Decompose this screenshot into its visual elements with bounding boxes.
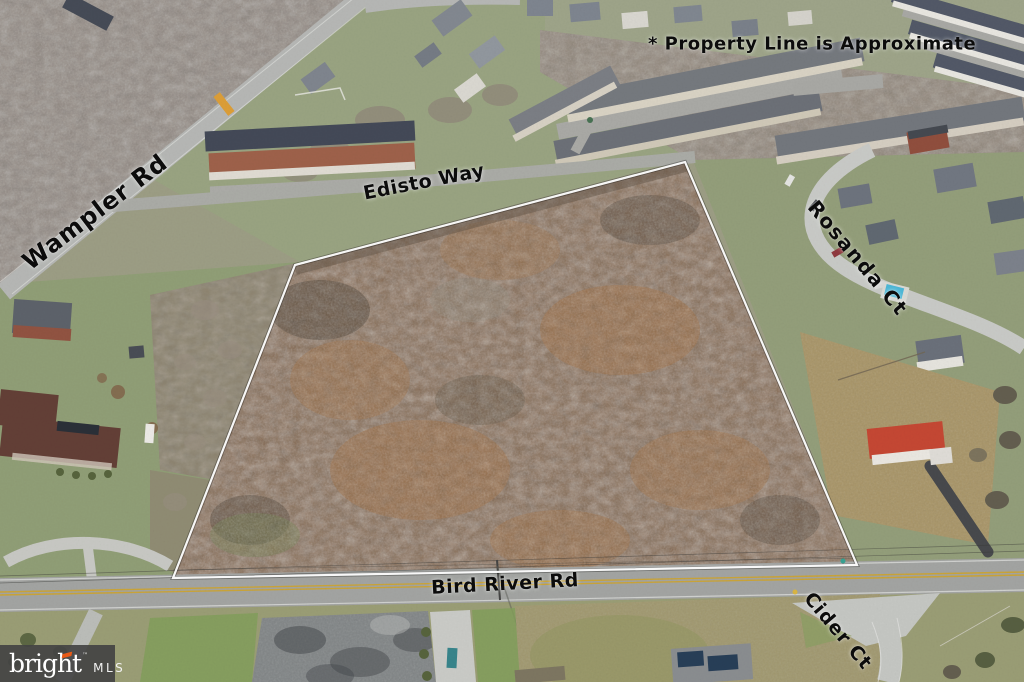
brightmls-logo-suffix: MLS	[93, 661, 125, 675]
property-line-disclaimer: * Property Line is Approximate	[648, 34, 976, 55]
aerial-property-photo: Wampler Rd Edisto Way Rosanda Ct Bird Ri…	[0, 0, 1024, 682]
brightmls-watermark: bright ™ MLS	[0, 645, 115, 682]
brightmls-logo-text: bright	[9, 645, 81, 682]
trademark-symbol: ™	[82, 652, 88, 659]
